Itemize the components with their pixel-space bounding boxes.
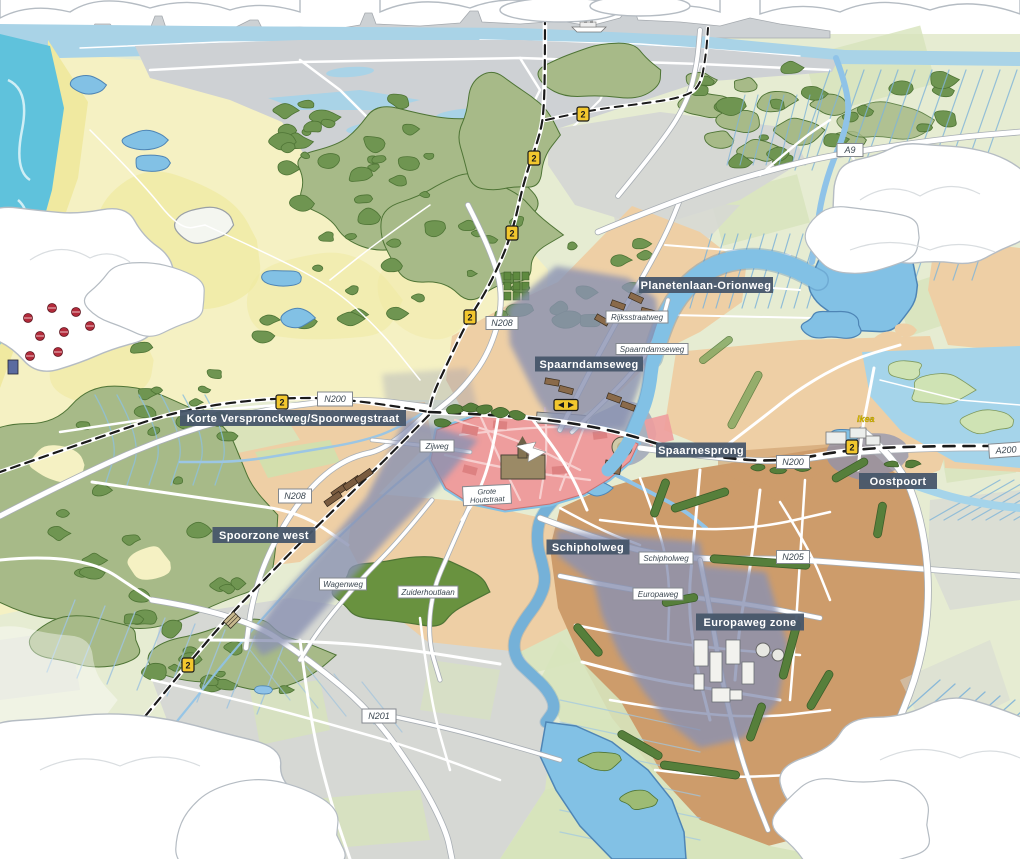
svg-text:Planetenlaan-Orionweg: Planetenlaan-Orionweg [641, 280, 772, 292]
svg-text:Rijksstraatweg: Rijksstraatweg [611, 313, 664, 322]
svg-text:Europaweg: Europaweg [638, 590, 679, 599]
svg-text:N208: N208 [491, 318, 513, 328]
svg-text:Schipholweg: Schipholweg [552, 542, 624, 554]
svg-text:N208: N208 [284, 491, 306, 501]
svg-text:A200: A200 [994, 444, 1017, 456]
svg-text:Zijweg: Zijweg [424, 442, 449, 451]
svg-text:2: 2 [849, 443, 854, 453]
svg-text:Zuiderhoutlaan: Zuiderhoutlaan [400, 588, 455, 597]
svg-text:2: 2 [279, 398, 284, 408]
svg-text:Spaarndamseweg: Spaarndamseweg [620, 345, 685, 354]
svg-text:N205: N205 [782, 552, 805, 562]
svg-text:2: 2 [185, 661, 190, 671]
svg-text:2: 2 [467, 313, 472, 323]
svg-text:2: 2 [580, 110, 585, 120]
svg-text:Schipholweg: Schipholweg [643, 554, 689, 563]
svg-text:Wagenweg: Wagenweg [323, 580, 363, 589]
svg-text:A9: A9 [843, 145, 855, 155]
svg-text:2: 2 [531, 154, 536, 164]
svg-text:Houtstraat: Houtstraat [470, 494, 506, 505]
svg-text:N200: N200 [324, 394, 346, 404]
svg-text:N200: N200 [782, 457, 804, 467]
svg-text:Europaweg zone: Europaweg zone [704, 617, 797, 629]
svg-text:Spaarnesprong: Spaarnesprong [658, 445, 744, 457]
svg-text:Spaarndamseweg: Spaarndamseweg [539, 359, 638, 371]
svg-text:N201: N201 [368, 711, 390, 721]
svg-text:Spoorzone west: Spoorzone west [219, 530, 309, 542]
svg-text:Oostpoort: Oostpoort [870, 476, 927, 488]
svg-text:Korte Verspronckweg/Spoorwegst: Korte Verspronckweg/Spoorwegstraat [187, 413, 400, 425]
svg-text:Ikea: Ikea [857, 414, 875, 424]
svg-text:2: 2 [509, 229, 514, 239]
